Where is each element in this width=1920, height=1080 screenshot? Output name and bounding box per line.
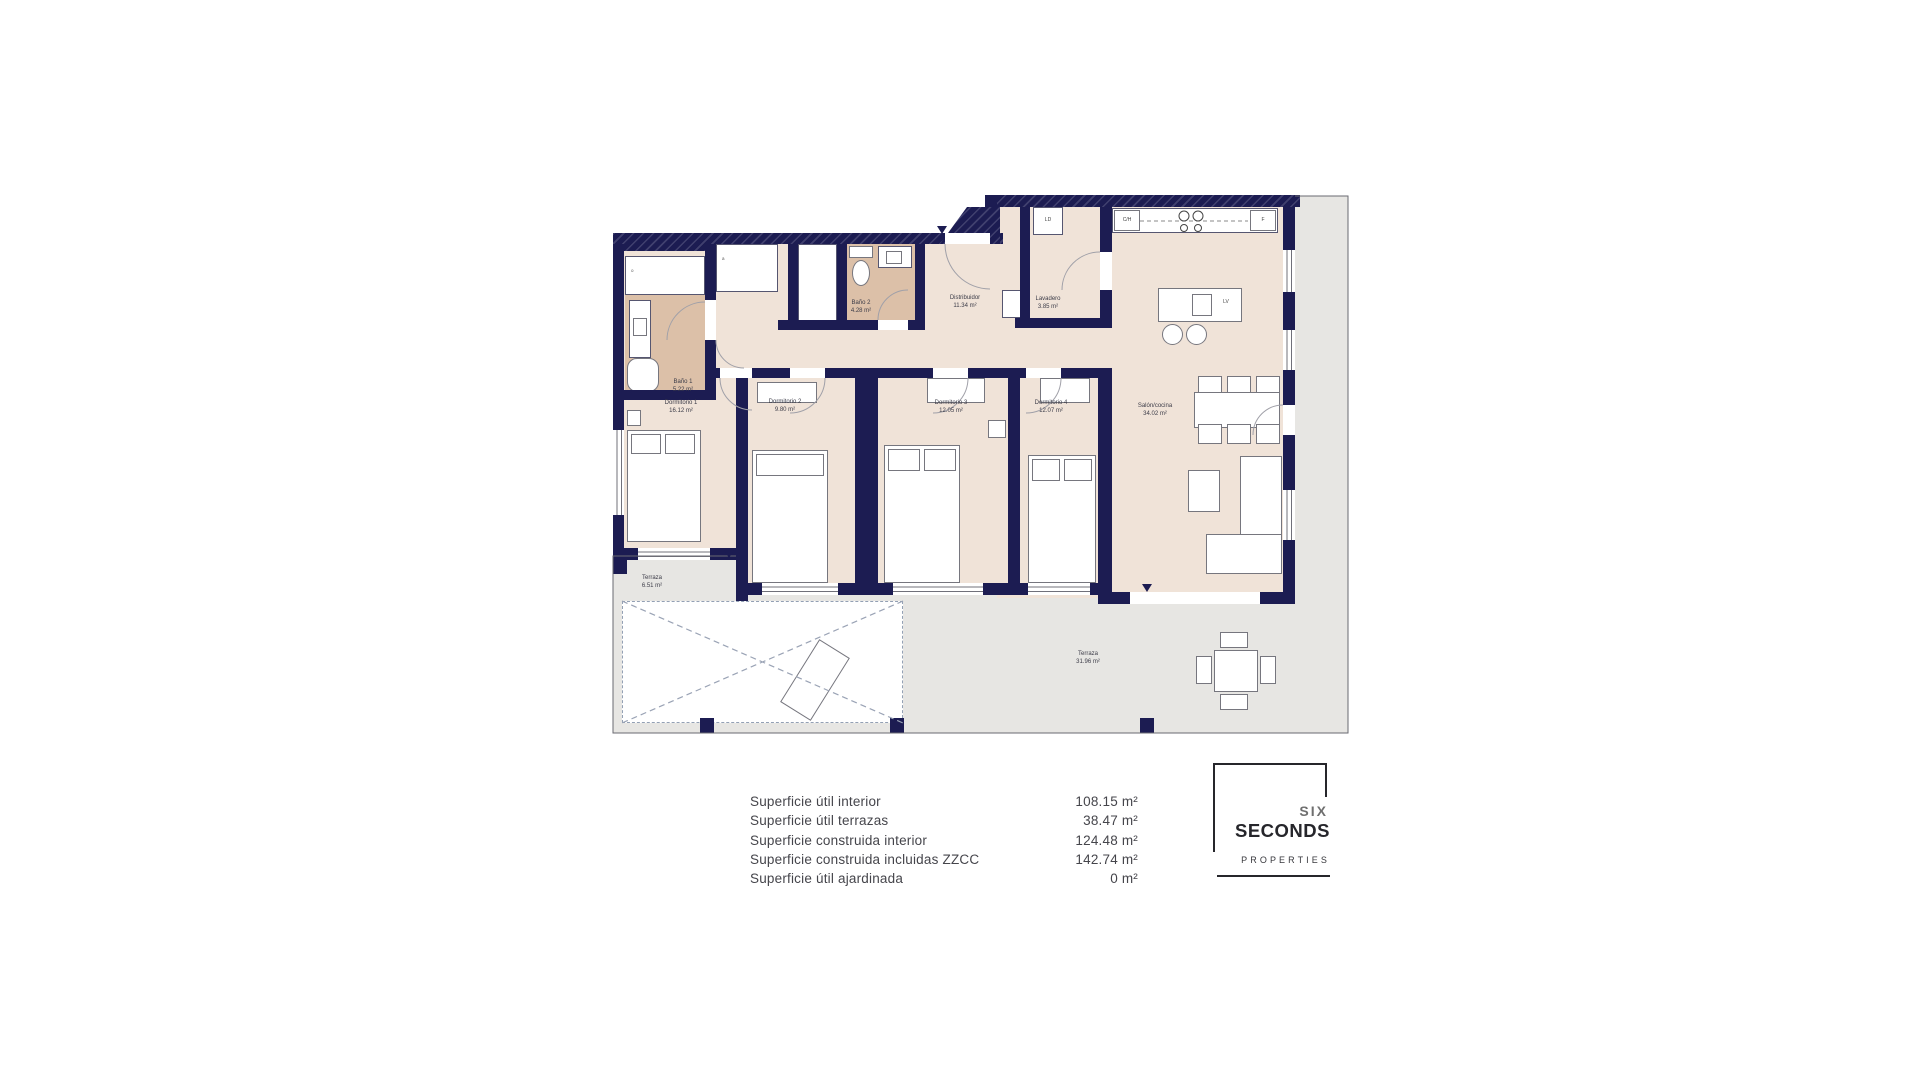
room-name: Dormitorio 1 <box>665 400 698 406</box>
room-area: 34.02 m² <box>1143 411 1167 417</box>
terrace-chair <box>1196 656 1212 684</box>
dishwasher-label: LV <box>1216 300 1236 305</box>
legend-label: Superficie construida interior <box>750 831 927 850</box>
wall <box>985 195 1300 207</box>
logo-text-properties: PROPERTIES <box>1241 855 1330 865</box>
pillow <box>631 434 661 454</box>
dining-chair <box>1256 424 1280 444</box>
room-name: Dormitorio 3 <box>935 400 968 406</box>
door-opening <box>878 320 908 330</box>
wall <box>613 233 713 251</box>
pillow <box>1032 459 1060 481</box>
dining-chair <box>1198 424 1222 444</box>
room-name: Terraza <box>1078 651 1098 657</box>
window <box>1283 490 1295 540</box>
terrace-chair <box>1260 656 1276 684</box>
legend-label: Superficie construida incluidas ZZCC <box>750 850 979 869</box>
terrace-door-opening <box>1283 405 1295 435</box>
wall <box>736 548 748 601</box>
wall <box>1100 207 1112 252</box>
room-name: Dormitorio 2 <box>769 399 802 405</box>
legend-value: 38.47 m² <box>1083 811 1138 830</box>
stool <box>1186 324 1207 345</box>
pillar <box>890 718 904 733</box>
legend-value: 142.74 m² <box>1075 850 1138 869</box>
room-area: 5.22 m² <box>673 387 693 393</box>
wall <box>837 244 847 330</box>
washing-machine-label: LD <box>1033 218 1063 223</box>
room-label-terraza-main: Terraza 31.96 m² <box>1043 651 1133 666</box>
room-name: Lavadero <box>1035 296 1060 302</box>
room-name: Baño 1 <box>673 379 692 385</box>
pillar <box>700 718 714 733</box>
door-opening <box>790 368 825 378</box>
logo-frame-top <box>1213 763 1327 765</box>
window <box>638 548 710 560</box>
room-name: Terraza <box>642 575 662 581</box>
door-opening <box>705 300 716 340</box>
room-label-banio-1: Baño 1 5.22 m² <box>638 379 728 394</box>
room-label-dormitorio-1: Dormitorio 1 16.12 m² <box>636 400 726 415</box>
pillow <box>1064 459 1092 481</box>
terrace-chair <box>1220 694 1248 710</box>
six-seconds-properties-logo: SIX SECONDS PROPERTIES <box>1213 763 1330 878</box>
room-label-salon-cocina: Salón/cocina 34.02 m² <box>1110 403 1200 418</box>
terrace-hatched-area <box>622 601 903 723</box>
room-name: Dormitorio 4 <box>1035 400 1068 406</box>
entrance-door-opening <box>945 233 990 244</box>
toilet-bowl <box>852 260 870 286</box>
shower-mark: o <box>631 268 634 273</box>
legend-label: Superficie útil ajardinada <box>750 869 903 888</box>
room-area: 31.96 m² <box>1076 659 1100 665</box>
wall <box>788 244 798 330</box>
legend-value: 108.15 m² <box>1075 792 1138 811</box>
logo-frame-left <box>1213 763 1215 852</box>
room-area: 12.05 m² <box>939 408 963 414</box>
terrace-table <box>1214 650 1258 692</box>
room-name: Baño 2 <box>851 300 870 306</box>
room-area: 11.34 m² <box>953 303 976 309</box>
pillar <box>1140 718 1154 733</box>
door-opening <box>933 368 968 378</box>
pillow <box>756 454 824 476</box>
legend-label: Superficie útil terrazas <box>750 811 888 830</box>
door-opening <box>1026 368 1061 378</box>
legend-row: Superficie útil terrazas 38.47 m² <box>750 811 1138 830</box>
logo-text-seconds: SECONDS <box>1235 820 1330 842</box>
logo-frame-right <box>1325 763 1327 797</box>
terrace-chair <box>1220 632 1248 648</box>
legend-row: Superficie útil ajardinada 0 m² <box>750 869 1138 888</box>
closet <box>716 244 778 292</box>
wall <box>1100 290 1112 320</box>
pillow <box>888 449 920 471</box>
door-opening <box>1100 252 1112 290</box>
room-label-dormitorio-3: Dormitorio 3 12.05 m² <box>906 400 996 415</box>
legend-value: 124.48 m² <box>1075 831 1138 850</box>
fridge-label: F <box>1250 218 1276 223</box>
window <box>1283 250 1295 292</box>
logo-text-six: SIX <box>1299 803 1328 819</box>
window <box>1283 330 1295 370</box>
room-area: 6.51 m² <box>642 583 662 589</box>
legend-row: Superficie construida incluidas ZZCC 142… <box>750 850 1138 869</box>
pillow <box>665 434 695 454</box>
dining-table <box>1194 392 1280 428</box>
wall <box>915 244 925 330</box>
oven-column-label: C/H <box>1114 218 1140 223</box>
room-label-dormitorio-4: Dormitorio 4 12.07 m² <box>1006 400 1096 415</box>
pillar <box>613 556 627 574</box>
wall <box>1015 318 1112 328</box>
room-area: 4.28 m² <box>851 308 871 314</box>
legend-row: Superficie construida interior 124.48 m² <box>750 831 1138 850</box>
pillow <box>924 449 956 471</box>
room-area: 3.85 m² <box>1038 304 1058 310</box>
surface-legend: Superficie útil interior 108.15 m² Super… <box>750 792 1138 888</box>
door-opening <box>720 368 752 378</box>
room-area: 12.07 m² <box>1039 408 1063 414</box>
legend-value: 0 m² <box>1110 869 1138 888</box>
door-marker <box>1142 584 1152 592</box>
room-label-dormitorio-2: Dormitorio 2 9.80 m² <box>740 399 830 414</box>
room-label-distribuidor: Distribuidor 11.34 m² <box>920 295 1010 310</box>
wall <box>855 368 878 583</box>
window <box>893 583 983 595</box>
legend-label: Superficie útil interior <box>750 792 881 811</box>
bathroom2-basin <box>886 251 902 264</box>
room-area: 16.12 m² <box>669 408 693 414</box>
dining-chair <box>1227 424 1251 444</box>
nightstand <box>988 420 1006 438</box>
closet-mark: a <box>722 256 725 261</box>
island-sink <box>1192 294 1212 316</box>
toilet-tank <box>849 246 873 258</box>
bathroom1-basin <box>633 318 647 336</box>
tv-unit <box>1188 470 1220 512</box>
shower <box>625 256 705 295</box>
logo-frame-bottom <box>1217 875 1330 877</box>
sofa <box>1206 534 1282 574</box>
room-label-lavadero: Lavadero 3.85 m² <box>1003 296 1093 311</box>
room-label-terraza-small: Terraza 6.51 m² <box>607 575 697 590</box>
door-marker <box>724 550 734 558</box>
legend-row: Superficie útil interior 108.15 m² <box>750 792 1138 811</box>
stool <box>1162 324 1183 345</box>
window <box>1028 583 1090 595</box>
window <box>613 430 624 515</box>
room-name: Distribuidor <box>950 295 980 301</box>
room-label-banio-2: Baño 2 4.28 m² <box>816 300 906 315</box>
room-name: Salón/cocina <box>1138 403 1172 409</box>
room-area: 9.80 m² <box>775 407 795 413</box>
window <box>762 583 838 595</box>
sliding-door-opening <box>1130 592 1260 604</box>
entrance-marker <box>937 226 947 234</box>
